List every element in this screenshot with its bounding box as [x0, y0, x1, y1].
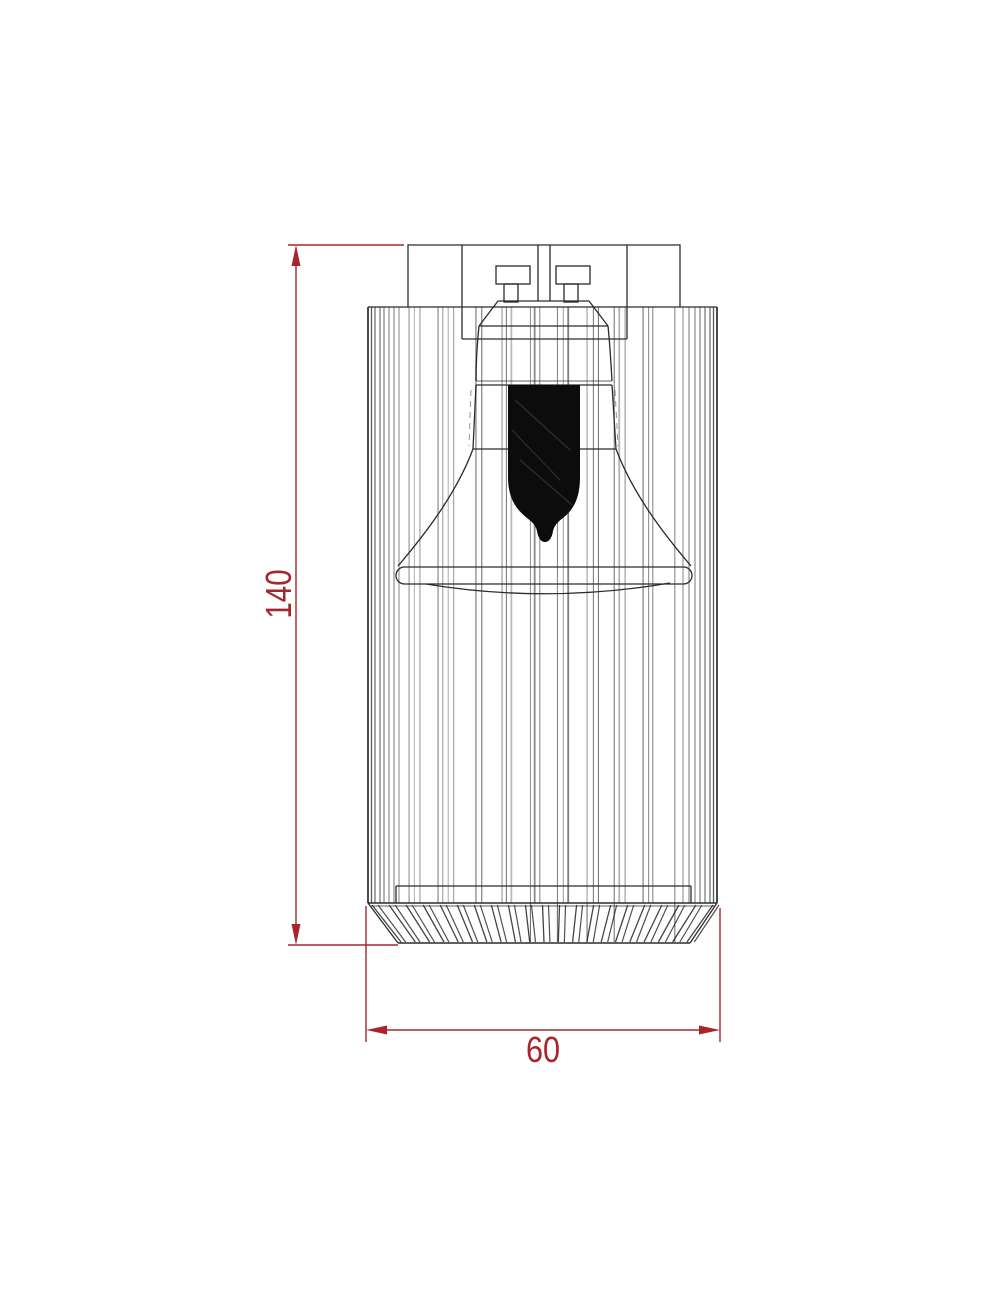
lamp-holder-sides: [476, 326, 612, 381]
fin-line: [429, 905, 449, 942]
base-fin-lines: [372, 903, 719, 942]
fin-line: [587, 905, 594, 942]
left-terminal-cap: [496, 266, 530, 284]
width-dimension-label: 60: [526, 1031, 560, 1071]
fin-line: [508, 905, 515, 942]
mounting-bracket: [408, 245, 680, 307]
fin-line: [480, 905, 492, 942]
fin-line: [558, 905, 559, 942]
fin-line: [564, 905, 565, 942]
fin-line: [395, 905, 420, 942]
fin-line: [637, 905, 651, 942]
lamp-silhouette: [508, 385, 580, 542]
height-dimension-label: 140: [258, 569, 298, 618]
bracket-inner-box: [462, 245, 627, 339]
drawing-page: 140 60: [0, 0, 1000, 1300]
bell-rim: [396, 567, 692, 584]
fin-line: [531, 905, 535, 942]
fin-line: [573, 905, 577, 942]
height-arrow-bottom: [292, 924, 301, 945]
fin-line: [412, 905, 434, 942]
base-inner-line: [396, 886, 691, 903]
fin-line: [616, 905, 628, 942]
width-arrow-right: [699, 1026, 720, 1035]
fin-line: [525, 905, 529, 942]
right-terminal-cap: [556, 266, 590, 284]
center-rod: [538, 245, 550, 301]
right-terminal-stem: [564, 284, 578, 302]
fin-line: [514, 905, 521, 942]
fin-line: [549, 905, 550, 942]
fin-line: [543, 905, 545, 942]
fin-line: [593, 905, 599, 942]
fin-line: [372, 905, 401, 942]
width-arrow-left: [366, 1026, 387, 1035]
fin-line: [579, 905, 583, 942]
dimension-annotations: 140 60: [258, 245, 720, 1071]
left-terminal-stem: [504, 284, 518, 302]
fin-line: [497, 905, 506, 942]
lamp-holder: [479, 301, 608, 326]
fin-line: [491, 905, 501, 942]
technical-drawing: 140 60: [0, 0, 1000, 1300]
height-arrow-top: [292, 245, 301, 266]
bell-flare-right: [616, 449, 691, 566]
